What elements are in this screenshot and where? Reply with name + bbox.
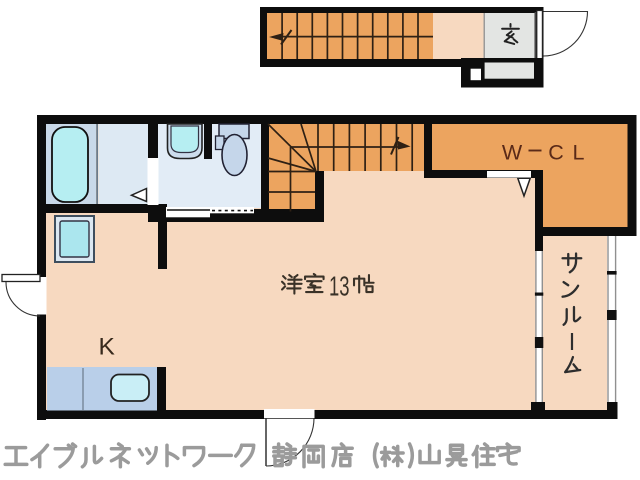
svg-text:W: W [502, 141, 523, 165]
svg-text:C: C [548, 141, 564, 165]
svg-text:13: 13 [329, 271, 350, 302]
svg-text:K: K [99, 334, 116, 361]
svg-text:L: L [573, 141, 585, 165]
